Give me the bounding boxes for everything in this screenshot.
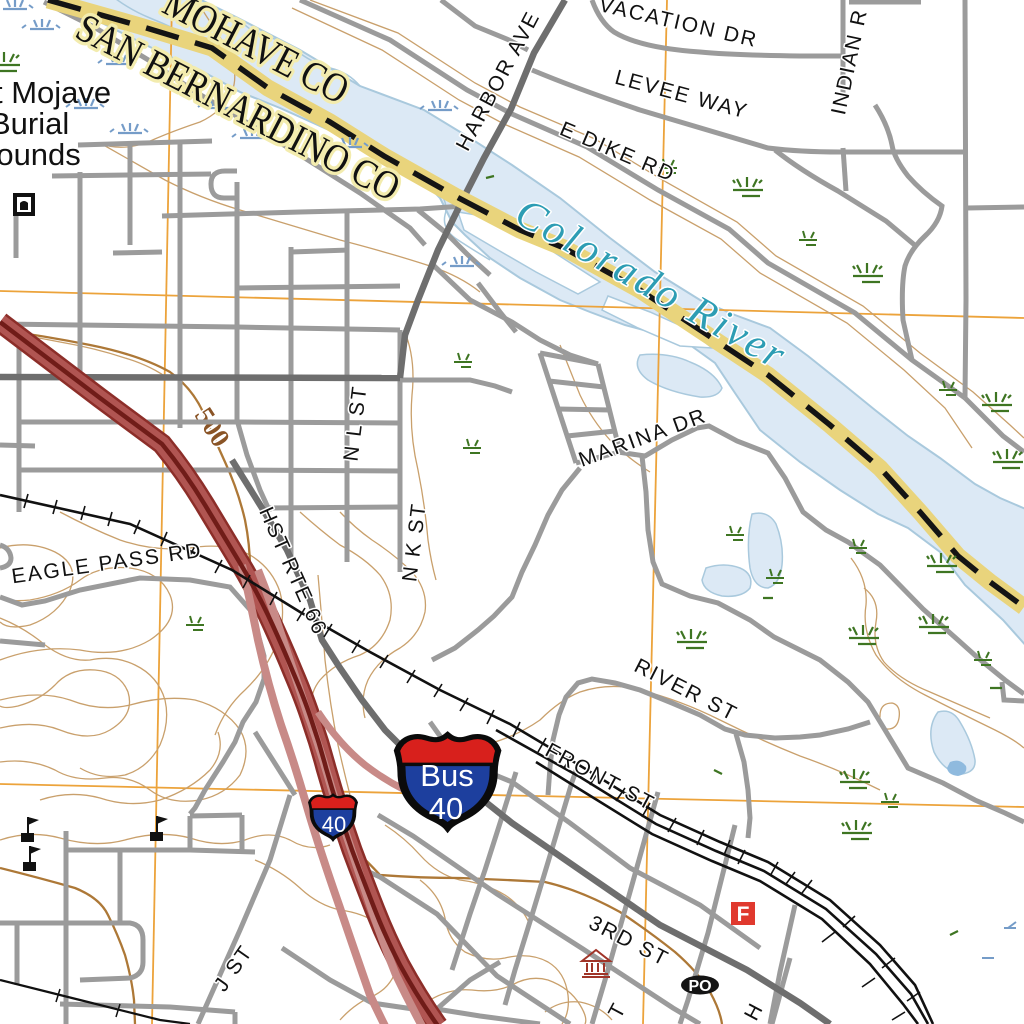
- svg-text:rounds: rounds: [0, 137, 81, 172]
- svg-text:Bus: Bus: [420, 758, 473, 793]
- svg-text:Burial: Burial: [0, 106, 69, 141]
- svg-text:PO: PO: [688, 978, 711, 995]
- svg-text:t Mojave: t Mojave: [0, 75, 111, 110]
- svg-text:40: 40: [429, 791, 463, 826]
- svg-text:F: F: [737, 903, 750, 926]
- svg-text:40: 40: [322, 812, 346, 837]
